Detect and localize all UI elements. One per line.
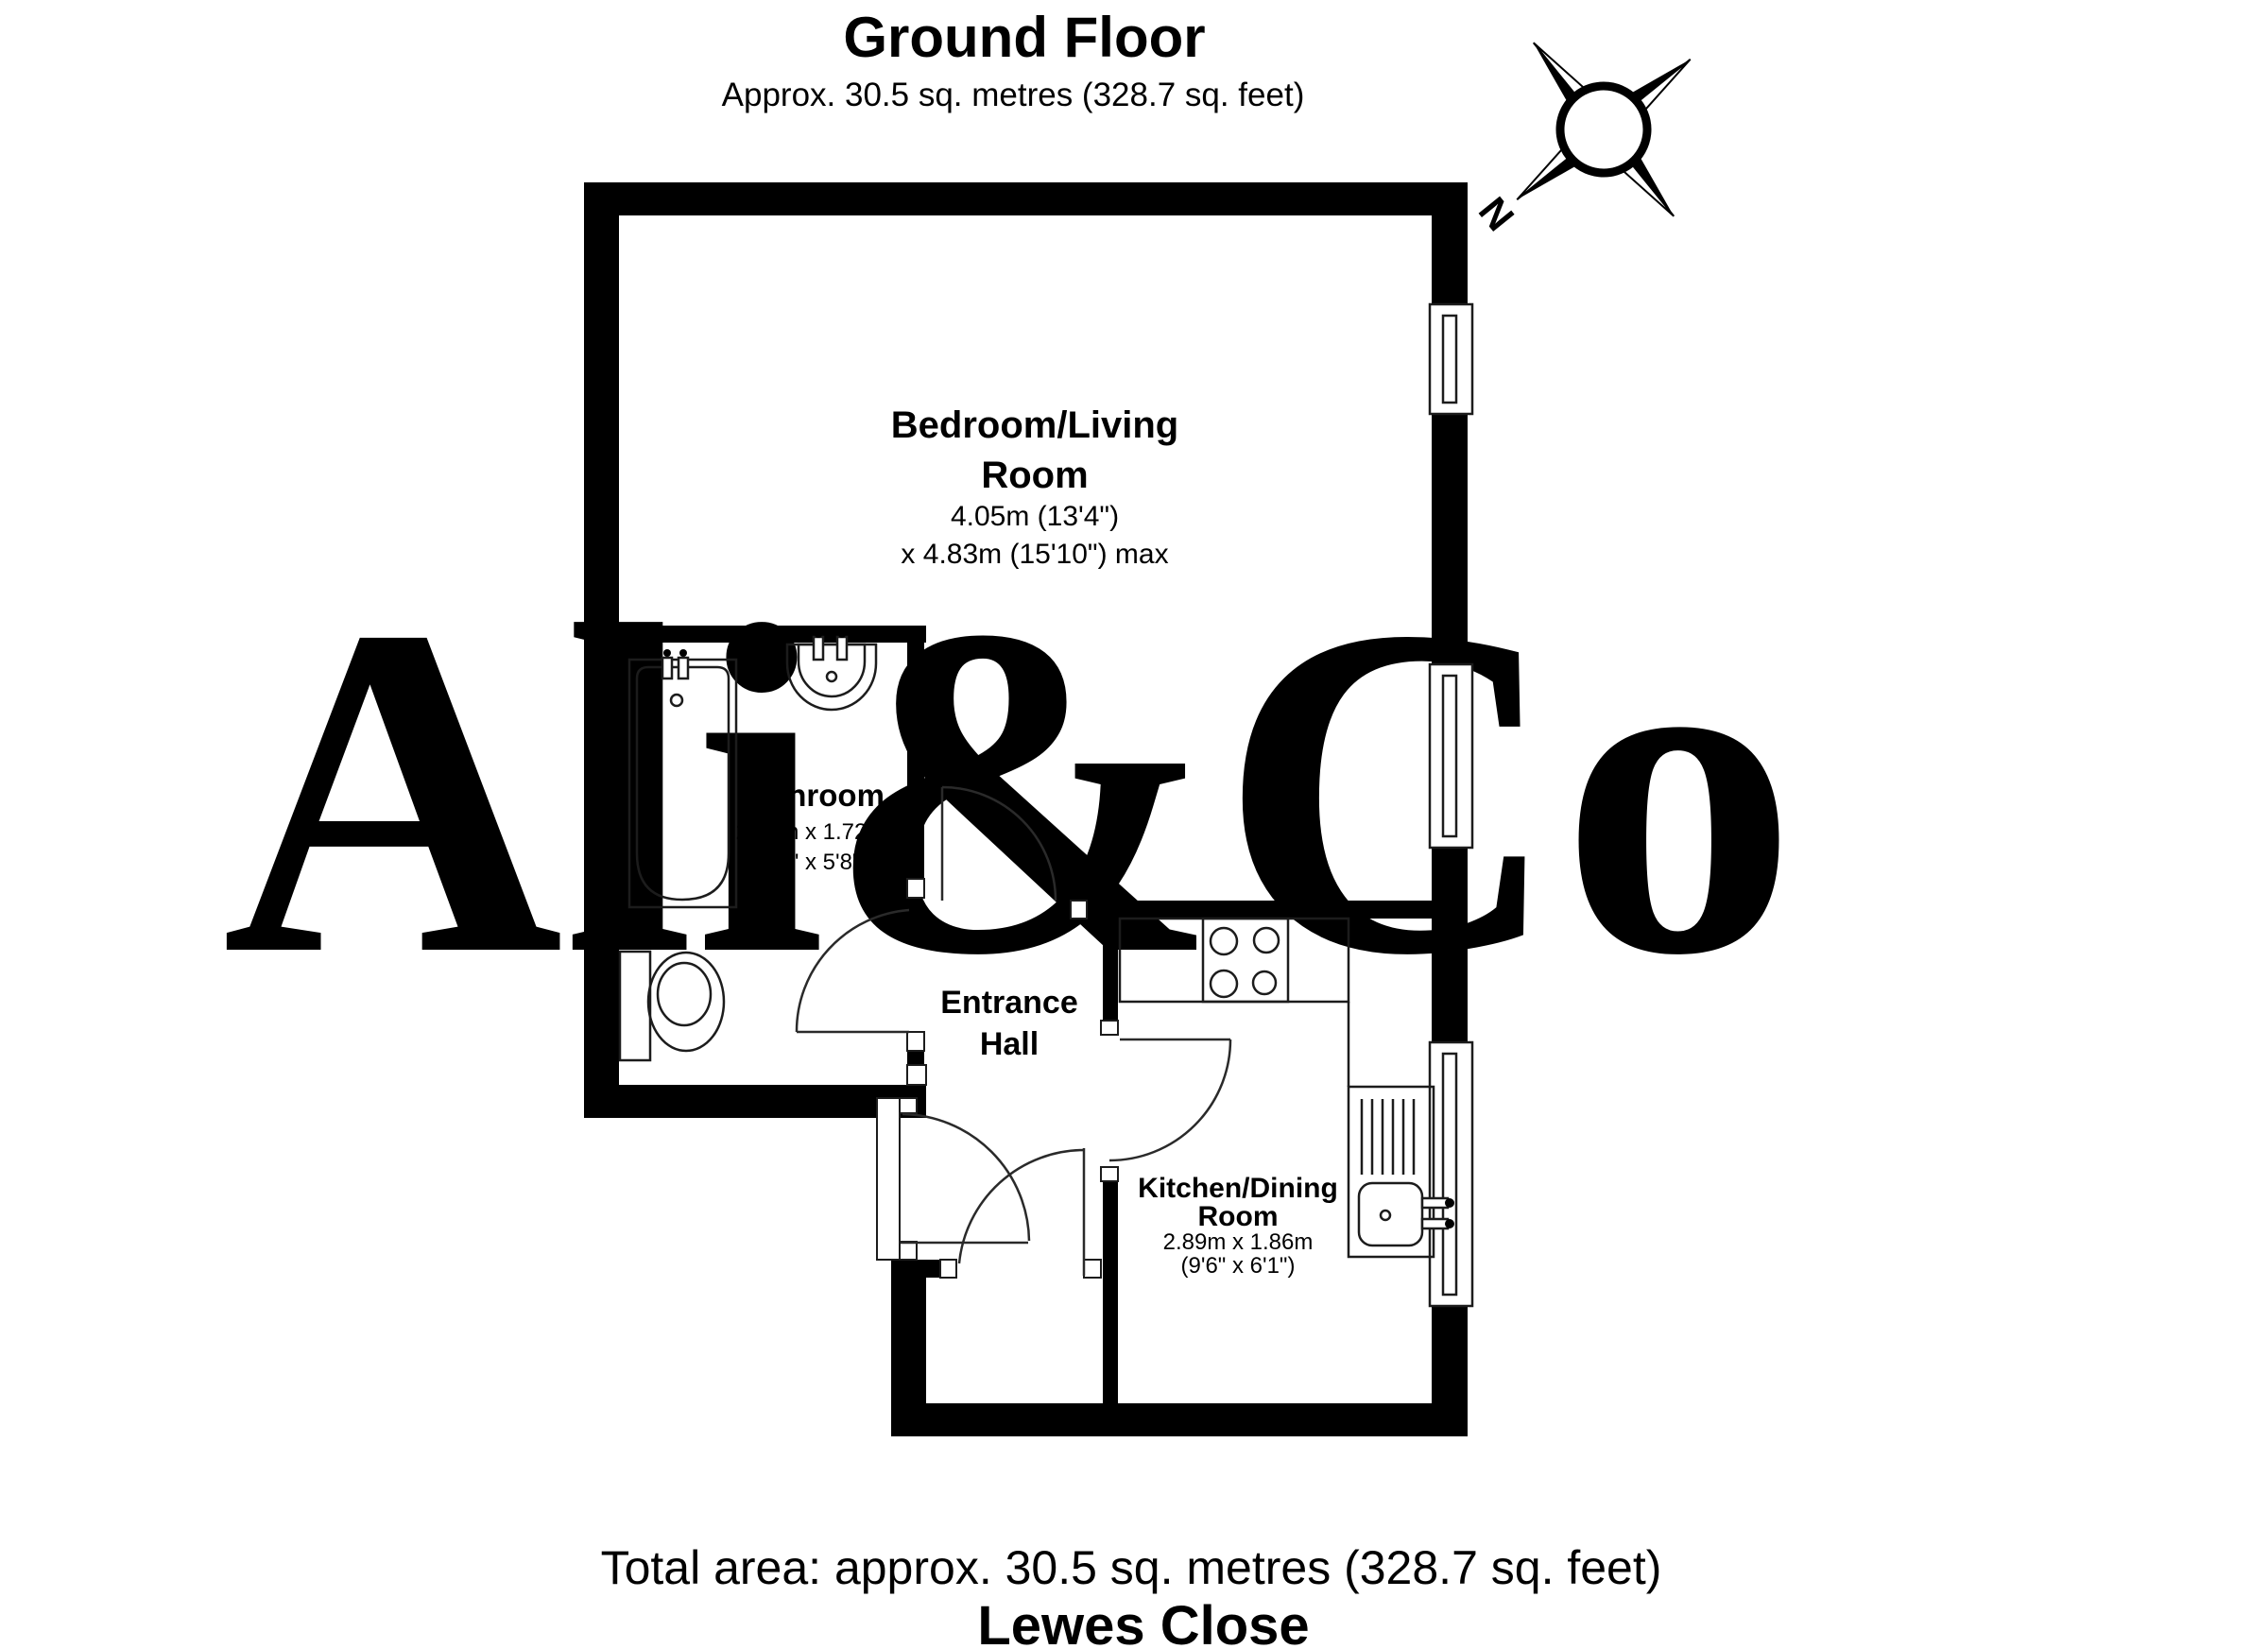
room-dimensions: 4.05m (13'4")	[951, 501, 1119, 532]
room-name: Room	[1198, 1201, 1279, 1232]
room-dimensions: (8'7" x 5'8")	[754, 850, 868, 875]
room-label-kitchen: Kitchen/Dining Room 2.89m x 1.86m (9'6" …	[1138, 1173, 1338, 1279]
header: Ground Floor Approx. 30.5 sq. metres (32…	[722, 6, 1305, 113]
door-kitchen	[1109, 1039, 1230, 1160]
room-dimensions: x 4.83m (15'10") max	[901, 539, 1168, 570]
window-icon-bedroom-lower	[1430, 664, 1472, 848]
total-area-label: Total area: approx. 30.5 sq. metres (328…	[601, 1541, 1662, 1594]
room-label-bedroom: Bedroom/Living Room 4.05m (13'4") x 4.83…	[891, 404, 1178, 570]
drainer-icon	[1362, 1099, 1414, 1175]
room-dimensions: 2.61m x 1.72m	[736, 819, 886, 845]
floorplan-drawing: Ali&Co	[0, 0, 2268, 1649]
page-subtitle: Approx. 30.5 sq. metres (328.7 sq. feet)	[722, 77, 1305, 113]
room-dimensions: 2.89m x 1.86m	[1163, 1229, 1314, 1255]
window-icon-bedroom-upper	[1430, 304, 1472, 414]
window-icon-kitchen	[1430, 1042, 1472, 1306]
north-label: N	[1470, 189, 1523, 239]
room-name: Hall	[980, 1026, 1039, 1062]
room-label-bathroom: Bathroom 2.61m x 1.72m (8'7" x 5'8")	[736, 778, 886, 875]
floorplan-page: Ali&Co	[0, 0, 2268, 1649]
door-front-entrance	[877, 1098, 1029, 1260]
watermark: Ali&Co	[222, 529, 1797, 1053]
room-name: Entrance	[940, 985, 1078, 1021]
compass-rose-icon: N	[1447, 0, 1761, 286]
door-vestibule	[959, 1148, 1084, 1276]
room-dimensions: (9'6" x 6'1")	[1181, 1253, 1296, 1279]
address-label: Lewes Close	[977, 1595, 1309, 1649]
room-name: Room	[981, 455, 1088, 496]
room-name: Kitchen/Dining	[1138, 1173, 1338, 1204]
footer: Total area: approx. 30.5 sq. metres (328…	[601, 1541, 1662, 1649]
page-title: Ground Floor	[843, 6, 1205, 69]
room-name: Bathroom	[737, 778, 885, 813]
room-name: Bedroom/Living	[891, 404, 1178, 446]
